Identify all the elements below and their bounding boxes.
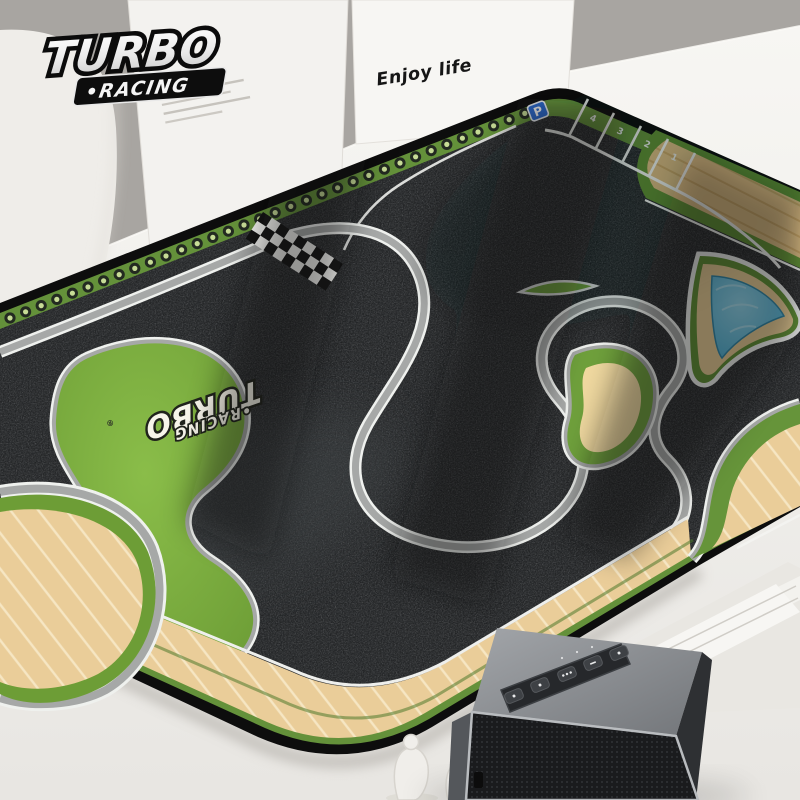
figurine-head: [404, 735, 419, 750]
speaker-led: [561, 657, 563, 659]
speaker-port: [474, 772, 483, 788]
gravel-trap-bottom-left: [0, 489, 160, 705]
product-photo: Enjoy life P 4 3: [0, 0, 800, 800]
speaker-led: [591, 646, 593, 648]
speaker-led: [576, 651, 578, 653]
figurine: [394, 748, 428, 800]
photo-canvas: Enjoy life P 4 3: [0, 0, 800, 800]
